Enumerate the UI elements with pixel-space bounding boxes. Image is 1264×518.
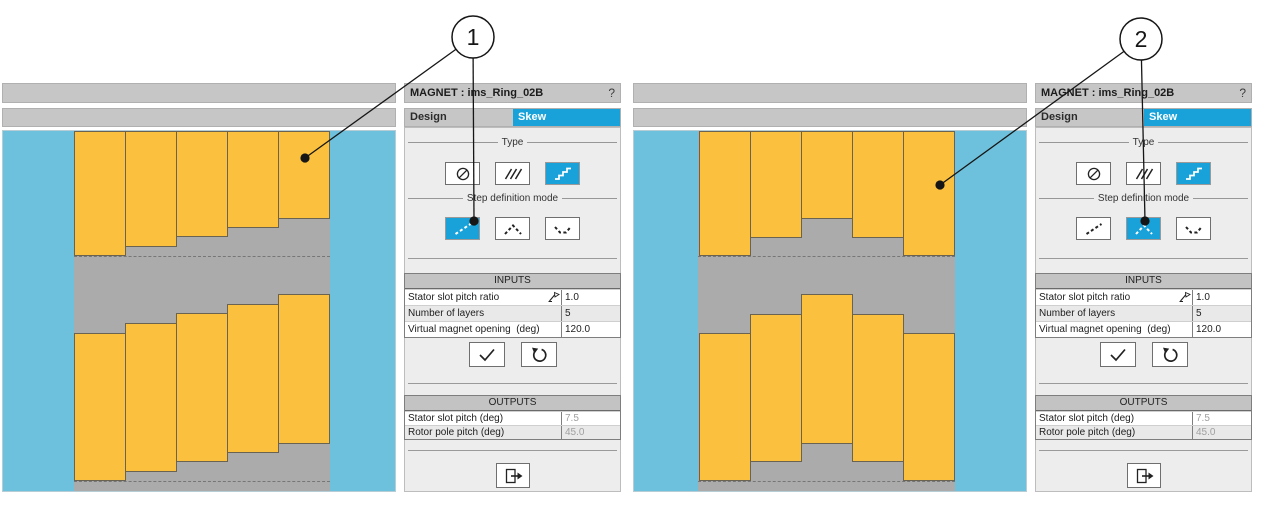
param-value: 7.5 [561,412,620,425]
step-button-group [404,217,621,240]
param-value: 45.0 [1192,426,1251,439]
legend-line [408,142,498,143]
callout-number: 2 [1135,26,1148,52]
magnet-block [903,333,955,481]
magnet-block [699,333,751,481]
magnet-block [278,131,330,219]
outputs-table: OUTPUTSStator slot pitch (deg)7.5Rotor p… [1035,395,1252,440]
continuous-skew-button[interactable] [1126,162,1161,185]
legend-line [1039,198,1094,199]
reset-button[interactable] [521,342,557,367]
help-button[interactable]: ? [608,86,615,100]
magnet-view-canvas[interactable] [633,130,1027,492]
no-skew-button[interactable] [1076,162,1111,185]
reset-button[interactable] [1152,342,1188,367]
divider [408,383,617,384]
magnet-block [278,294,330,444]
step-section-legend: Step definition mode [408,192,617,204]
magnet-dialog-window-2: MAGNET : ims_Ring_02B ? Design Skew Type… [633,81,1252,492]
type-button-group [1035,162,1252,185]
magnet-block [903,131,955,256]
magnet-block [227,304,279,453]
step-section-label: Step definition mode [463,193,562,204]
action-button-row [1035,342,1252,367]
tab-bar: Design Skew [1035,108,1252,127]
param-label: Stator slot pitch (deg) [1036,412,1192,425]
reference-dashed-line [698,481,955,482]
legend-line [527,142,617,143]
table-row: Virtual magnet opening (deg)120.0 [1036,321,1251,337]
param-label: Stator slot pitch ratio [405,290,561,305]
param-label: Number of layers [405,306,561,321]
magnet-block [750,131,802,238]
param-label: Rotor pole pitch (deg) [1036,426,1192,439]
tab-bar: Design Skew [404,108,621,127]
inputs-table: INPUTSStator slot pitch ratio1.0Number o… [404,273,621,338]
divider [1039,450,1248,451]
type-section-label: Type [498,137,528,148]
param-label: Rotor pole pitch (deg) [405,426,561,439]
tab-skew[interactable]: Skew [513,109,620,126]
table-row: Virtual magnet opening (deg)120.0 [405,321,620,337]
formula-link-icon[interactable] [1178,291,1191,303]
linear-steps-button[interactable] [1076,217,1111,240]
type-section-legend: Type [1039,136,1248,148]
magnet-block [852,131,904,238]
no-skew-button[interactable] [445,162,480,185]
magnet-panel-1: MAGNET : ims_Ring_02B ? Design Skew Type… [404,81,621,492]
param-label: Virtual magnet opening (deg) [1036,322,1192,337]
param-value: 45.0 [561,426,620,439]
table-header: OUTPUTS [405,396,620,411]
magnet-block [125,323,177,472]
magnet-block [74,131,126,256]
view-toolbar [2,108,396,127]
magnet-view-canvas[interactable] [2,130,396,492]
param-label: Number of layers [1036,306,1192,321]
step-skew-button[interactable] [545,162,580,185]
validate-button[interactable] [1100,342,1136,367]
step-skew-button[interactable] [1176,162,1211,185]
type-section-legend: Type [408,136,617,148]
divider [408,258,617,259]
param-value: 7.5 [1192,412,1251,425]
table-row: Stator slot pitch (deg)7.5 [405,411,620,425]
linear-steps-button[interactable] [445,217,480,240]
param-value[interactable]: 1.0 [561,290,620,305]
panel-title-bar[interactable]: MAGNET : ims_Ring_02B ? [1035,83,1252,103]
magnet-view-2 [633,81,1027,492]
table-row: Stator slot pitch ratio1.0 [1036,289,1251,305]
param-value[interactable]: 120.0 [561,322,620,337]
callout-number: 1 [467,24,480,50]
param-label: Stator slot pitch ratio [1036,290,1192,305]
magnet-block [125,131,177,247]
legend-line [1039,142,1129,143]
magnet-block [801,294,853,444]
type-button-group [404,162,621,185]
tab-design[interactable]: Design [1036,109,1143,126]
magnet-block [74,333,126,481]
table-row: Number of layers5 [1036,305,1251,321]
view-title-bar[interactable] [2,83,396,103]
tab-skew[interactable]: Skew [1144,109,1251,126]
formula-link-icon[interactable] [547,291,560,303]
tab-design[interactable]: Design [405,109,512,126]
magnet-block [176,131,228,237]
table-header: INPUTS [405,274,620,289]
legend-line [408,198,463,199]
exit-button-row [404,463,621,488]
divider [1039,383,1248,384]
table-row: Rotor pole pitch (deg)45.0 [405,425,620,439]
magnet-block [750,314,802,462]
valley-steps-button[interactable] [1176,217,1211,240]
peak-steps-button[interactable] [495,217,530,240]
magnet-block [176,313,228,462]
callout-badge [452,16,494,58]
param-label: Virtual magnet opening (deg) [405,322,561,337]
divider [1039,258,1248,259]
panel-title-bar[interactable]: MAGNET : ims_Ring_02B ? [404,83,621,103]
callout-badge [1120,18,1162,60]
table-row: Stator slot pitch (deg)7.5 [1036,411,1251,425]
magnet-block [699,131,751,256]
valley-steps-button[interactable] [545,217,580,240]
inputs-table: INPUTSStator slot pitch ratio1.0Number o… [1035,273,1252,338]
dialog-title: MAGNET : ims_Ring_02B [410,87,543,99]
param-value[interactable]: 5 [561,306,620,321]
validate-button[interactable] [469,342,505,367]
magnet-panel-2: MAGNET : ims_Ring_02B ? Design Skew Type… [1035,81,1252,492]
reference-dashed-line [74,481,330,482]
exit-button-row [1035,463,1252,488]
table-header: OUTPUTS [1036,396,1251,411]
table-row: Number of layers5 [405,305,620,321]
table-row: Rotor pole pitch (deg)45.0 [1036,425,1251,439]
type-section-label: Type [1129,137,1159,148]
exit-button[interactable] [1127,463,1161,488]
view-title-bar[interactable] [633,83,1027,103]
param-label: Stator slot pitch (deg) [405,412,561,425]
step-section-legend: Step definition mode [1039,192,1248,204]
reference-dashed-line [74,256,330,257]
outputs-table: OUTPUTSStator slot pitch (deg)7.5Rotor p… [404,395,621,440]
action-button-row [404,342,621,367]
legend-line [562,198,617,199]
legend-line [1193,198,1248,199]
magnet-block [227,131,279,228]
reference-dashed-line [698,256,955,257]
param-value[interactable]: 120.0 [1192,322,1251,337]
table-row: Stator slot pitch ratio1.0 [405,289,620,305]
exit-button[interactable] [496,463,530,488]
magnet-block [801,131,853,219]
magnet-view-1 [2,81,396,492]
param-value[interactable]: 1.0 [1192,290,1251,305]
legend-line [1158,142,1248,143]
magnet-dialog-window-1: MAGNET : ims_Ring_02B ? Design Skew Type… [2,81,621,492]
view-toolbar [633,108,1027,127]
step-section-label: Step definition mode [1094,193,1193,204]
param-value[interactable]: 5 [1192,306,1251,321]
help-button[interactable]: ? [1239,86,1246,100]
peak-steps-button[interactable] [1126,217,1161,240]
magnet-block [852,314,904,462]
continuous-skew-button[interactable] [495,162,530,185]
dialog-title: MAGNET : ims_Ring_02B [1041,87,1174,99]
table-header: INPUTS [1036,274,1251,289]
divider [408,450,617,451]
step-button-group [1035,217,1252,240]
